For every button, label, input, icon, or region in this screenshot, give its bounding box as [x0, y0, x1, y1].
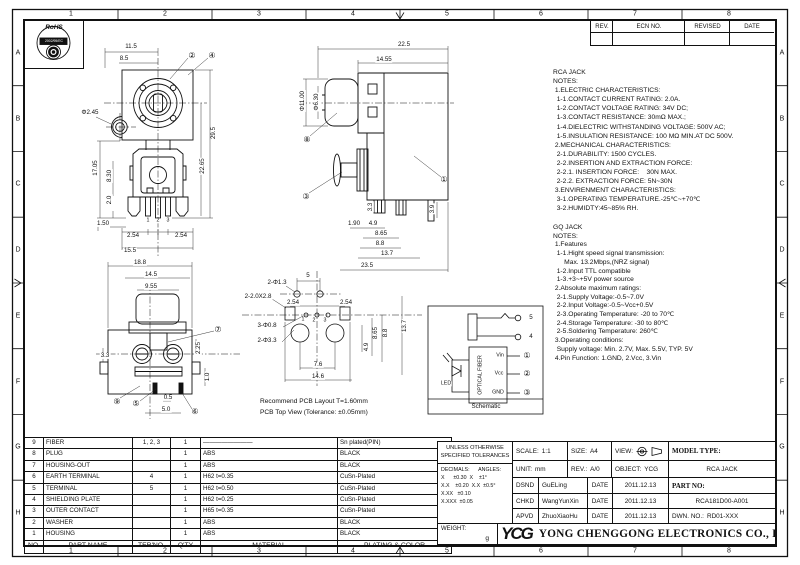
note-line: 2-2.1. INSERTION FORCE: 30N MAX.	[553, 168, 733, 177]
parts-table-cell: ABS	[201, 449, 338, 460]
parts-table-cell: HOUSING	[44, 529, 133, 540]
pcb-caption-line2: PCB Top View (Tolerance: ±0.05mm)	[260, 409, 368, 416]
revision-empty-cell	[684, 32, 730, 45]
grid-row-label: A	[780, 49, 785, 56]
parts-table-cell: 1	[171, 517, 201, 528]
note-line: 1-2.CONTACT VOLTAGE RATING: 34V DC;	[553, 104, 733, 113]
pcb-layout-view	[285, 291, 350, 342]
tolerance-block: UNLESS OTHERWISE SPECIFIED TOLERANCES DE…	[437, 441, 513, 524]
dimension-label: 29.5	[211, 126, 217, 140]
tolerance-values: DECIMALS: ANGLES:X ±0.30 X ±1°X.X ±0.20 …	[438, 464, 512, 506]
dimension-label: 8.8	[375, 241, 386, 247]
note-line: 2-2.2. EXTRACTION FORCE: 5N~30N	[553, 177, 733, 186]
apvd-name: ZhuoXiaoHu	[542, 513, 578, 520]
weight-cell: WEIGHT: g	[437, 523, 498, 545]
chkd-label: CHKD	[516, 498, 534, 505]
parts-table-cell: 1	[25, 529, 44, 540]
dimension-label: 3.9	[430, 204, 436, 215]
note-line: 2-2.INSERTION AND EXTRACTION FORCE:	[553, 159, 733, 168]
dimension-label: 0.5	[163, 395, 174, 401]
dsnd-date-cell: 2011.12.13	[612, 477, 669, 494]
parts-table-cell: BLACK	[338, 517, 452, 528]
dimension-label: 3	[166, 218, 171, 223]
parts-table-cell: CuSn-Plated	[338, 494, 452, 505]
dimension-label: 4	[528, 334, 533, 340]
grid-column-label: 6	[539, 548, 543, 555]
note-line: 1-1.Hight speed signal transmission:	[553, 250, 693, 259]
part-no-label: PART NO:	[672, 482, 705, 490]
company-cell: YCG YONG CHENGGONG ELECTRONICS CO., LTD.	[497, 523, 776, 545]
parts-table-cell: BLACK	[338, 449, 452, 460]
dsnd-role-cell: DSND	[512, 477, 539, 494]
parts-table-cell: 3	[25, 506, 44, 517]
part-callout: ②	[188, 52, 195, 60]
note-line: 1-1.CONTACT CURRENT RATING: 2.0A.	[553, 95, 733, 104]
grid-row-label: E	[16, 312, 21, 319]
note-line: 3-1.OPERATING TEMPERATURE.-25℃~+70℃	[553, 195, 733, 204]
note-line: X.XX ±0.10	[441, 490, 512, 498]
dimension-label: 5.0	[161, 407, 172, 413]
drawing-sheet: 1122334455667788AABBCCDDEEFFGGHH RoHS 20…	[0, 0, 800, 565]
dimension-label: 3-Φ0.8	[256, 323, 277, 329]
chkd-role-cell: CHKD	[512, 493, 539, 509]
dimension-label: 2.54	[339, 300, 353, 306]
parts-table-cell: BLACK	[338, 529, 452, 540]
dimension-label: 8.30	[107, 169, 113, 183]
size-label: SIZE:	[571, 448, 587, 455]
grid-column-label: 7	[633, 548, 637, 555]
grid-column-label: 6	[539, 11, 543, 18]
note-line: GQ JACK	[553, 224, 693, 233]
note-line: 1.ELECTRIC CHARACTERISTICS:	[553, 86, 733, 95]
part-no-value: RCA181D00-A001	[696, 498, 749, 505]
part-callout: ③	[302, 193, 309, 201]
bottom-view	[100, 294, 200, 394]
dimension-label: 22.65	[200, 157, 206, 174]
parts-table-cell: 1	[171, 483, 201, 494]
dimension-label: 11.5	[124, 44, 138, 50]
parts-table-cell: 5	[25, 483, 44, 494]
dimension-label: 22.5	[397, 42, 411, 48]
chkd-date: 2011.12.13	[625, 498, 657, 505]
apvd-date: 2011.12.13	[625, 513, 657, 520]
dimension-label: 2-Φ3.3	[256, 338, 277, 344]
parts-table-cell: NO.	[25, 540, 44, 554]
parts-table-cell: 1	[171, 506, 201, 517]
dimension-label: 2.54	[286, 300, 300, 306]
front-view	[112, 70, 193, 218]
dimension-label: 1.0	[205, 372, 211, 383]
parts-table-cell: BLACK	[338, 460, 452, 471]
grid-row-label: F	[16, 378, 20, 385]
note-line: 2.Absolute maximum ratings:	[553, 285, 693, 294]
dsnd-label: DSND	[516, 482, 534, 489]
grid-row-label: G	[15, 444, 20, 451]
parts-table-cell: 9	[25, 438, 44, 449]
note-line: 1-3.CONTACT RESISTANCE: 30mΩ MAX.;	[553, 113, 733, 122]
parts-table-cell: CuSn-Plated	[338, 506, 452, 517]
parts-table-cell: H65 t=0.35	[201, 506, 338, 517]
note-line: 1-4.DIELECTRIC WITHSTANDING VOLTAGE: 500…	[553, 123, 733, 132]
dimension-label: 1.90	[347, 221, 361, 227]
grid-row-label: B	[780, 115, 785, 122]
parts-table-cell: WASHER	[44, 517, 133, 528]
chkd-date-cell: 2011.12.13	[612, 493, 669, 509]
projection-symbols-icon	[636, 446, 663, 457]
tolerance-title-line2: SPECIFIED TOLERANCES	[438, 453, 512, 461]
rohs-title: RoHS	[25, 24, 83, 31]
grid-column-label: 2	[163, 11, 167, 18]
view-cell: VIEW:	[611, 441, 669, 461]
parts-table-cell: 5	[133, 483, 171, 494]
model-type-label-cell: MODEL TYPE:	[668, 441, 776, 461]
dimension-label: 14.5	[144, 272, 158, 278]
pcb-caption-line1: Recommend PCB Layout T=1.60mm	[260, 398, 368, 405]
parts-table-cell	[133, 517, 171, 528]
size-value: A4	[590, 448, 598, 455]
dwn-no-label: DWN. NO.:	[672, 513, 704, 520]
rca-jack-notes: RCA JACKNOTES: 1.ELECTRIC CHARACTERISTIC…	[553, 68, 733, 214]
part-callout: ⑥	[191, 408, 198, 416]
model-type-value-cell: RCA JACK	[668, 460, 776, 478]
scale-label: SCALE:	[516, 448, 539, 455]
unit-label: UNIT:	[516, 466, 532, 473]
grid-column-label: 8	[727, 548, 731, 555]
dimension-label: 18.8	[133, 260, 147, 266]
dimension-label: Vin	[495, 353, 505, 358]
note-line: 2-2.Input Voltage:-0.5~Vcc+0.5V	[553, 302, 693, 311]
grid-row-label: E	[780, 312, 785, 319]
grid-row-label: D	[779, 247, 784, 254]
parts-table-cell: H62 t=0.25	[201, 494, 338, 505]
unit-value: mm	[535, 466, 546, 473]
weight-unit: g	[485, 535, 489, 542]
note-line: Max. 13.2Mbps,(NRZ signal)	[553, 259, 693, 268]
dimension-label: 4.9	[368, 221, 379, 227]
rev-value: A/0	[590, 466, 600, 473]
note-line: 2-1.DURABILITY: 1500 CYCLES.	[553, 150, 733, 159]
part-callout: ⑨	[113, 398, 120, 406]
parts-table-cell: ABS	[201, 517, 338, 528]
company-name: YONG CHENGGONG ELECTRONICS CO., LTD.	[539, 528, 776, 540]
dimension-label: Φ6.30	[314, 93, 320, 112]
gq-jack-notes: GQ JACKNOTES: 1.Features 1-1.Hight speed…	[553, 224, 693, 363]
dimension-label: 2.54	[126, 233, 140, 239]
parts-table-cell: Q'TY	[171, 540, 201, 554]
parts-table-cell: 1	[171, 472, 201, 483]
grid-row-label: C	[15, 181, 20, 188]
dimension-label: 2-Φ1.3	[266, 280, 287, 286]
object-label: OBJECT:	[615, 466, 641, 473]
dimension-label: 2.0	[107, 195, 113, 206]
parts-table-cell: FIBER	[44, 438, 133, 449]
dimension-label: 8.8	[383, 328, 389, 339]
part-callout: ①	[440, 176, 447, 184]
rev-cell: REV.: A/0	[567, 460, 612, 478]
dimension-label: 4.9	[364, 342, 370, 353]
parts-table-cell: 1	[171, 438, 201, 449]
parts-table-cell: PLUG	[44, 449, 133, 460]
dimension-label: 2-2.0X2.8	[244, 294, 273, 300]
grid-row-label: C	[779, 181, 784, 188]
parts-table-cell: 4	[25, 494, 44, 505]
note-line: 3.Operating conditions:	[553, 337, 693, 346]
grid-column-label: 5	[445, 11, 449, 18]
parts-table-cell: Sn plated(PIN)	[338, 438, 452, 449]
scale-cell: SCALE: 1:1	[512, 441, 568, 461]
dsnd-name: GuELing	[542, 482, 567, 489]
note-line: 1-3.+3~+5V power source	[553, 276, 693, 285]
revision-table: REV. ECN NO. REVISED DATE	[590, 20, 777, 46]
dimension-label: 9.55	[144, 284, 158, 290]
parts-table: 9FIBER1, 2, 31————————Sn plated(PIN)8PLU…	[24, 437, 452, 554]
note-line: 1-2.Input TTL compatible	[553, 268, 693, 277]
dimension-label: Vcc	[494, 371, 505, 376]
parts-table-cell: 6	[25, 472, 44, 483]
note-line: X.XXX ±0.05	[441, 498, 512, 506]
dimension-label: 5	[528, 315, 533, 321]
parts-table-cell: PLATING & COLOR	[338, 540, 452, 554]
parts-table-cell: ————————	[201, 438, 338, 449]
chkd-name-cell: WangYunXin	[538, 493, 588, 509]
dimension-label: 8.65	[373, 326, 379, 340]
note-line: NOTES:	[553, 77, 733, 86]
dimension-label: 8.5	[119, 56, 130, 62]
parts-table-cell: 2	[25, 517, 44, 528]
size-cell: SIZE: A4	[567, 441, 612, 461]
dimension-label: 3.3	[368, 202, 374, 213]
dimension-label: LED	[440, 381, 452, 386]
parts-table-cell	[133, 529, 171, 540]
parts-table-cell: 7	[25, 460, 44, 471]
weight-label: WEIGHT:	[441, 526, 466, 532]
revision-empty-cell	[729, 32, 774, 45]
dimension-label: 7.6	[313, 362, 324, 368]
note-line: DECIMALS: ANGLES:	[441, 466, 512, 474]
apvd-label: APVD	[516, 513, 533, 520]
dimension-label: OPTICAL FIBER	[478, 354, 483, 396]
part-callout: ②	[523, 370, 530, 378]
dimension-label: 2.25	[196, 341, 202, 355]
rohs-logo: RoHS 2002/95/EC	[24, 20, 84, 69]
note-line: 2-3.Operating Temperature: -20 to 70℃	[553, 311, 693, 320]
note-line: NOTES:	[553, 233, 693, 242]
parts-table-cell: ABS	[201, 460, 338, 471]
rohs-directive: 2002/95/EC	[25, 39, 83, 43]
dimension-label: 13.7	[402, 319, 408, 333]
grid-row-label: H	[779, 510, 784, 517]
dsnd-name-cell: GuELing	[538, 477, 588, 494]
note-line: RCA JACK	[553, 68, 733, 77]
part-no-label-cell: PART NO:	[668, 477, 776, 494]
parts-table-cell: MATERIAL	[201, 540, 338, 554]
dimension-label: 13.7	[380, 251, 394, 257]
rev-label: REV.:	[571, 466, 587, 473]
parts-table-cell: H62 t=0.50	[201, 483, 338, 494]
dimension-label: GND	[491, 390, 505, 395]
object-cell: OBJECT: YCG	[611, 460, 669, 478]
parts-table-cell: 1	[171, 494, 201, 505]
grid-column-label: 7	[633, 11, 637, 18]
parts-table-cell: OUTER CONTACT	[44, 506, 133, 517]
dsnd-date-label-cell: DATE	[587, 477, 613, 494]
note-line: 2-5.Soldering Temperature: 260℃	[553, 328, 693, 337]
parts-table-cell: HOUSING-OUT	[44, 460, 133, 471]
dimension-label: 15.5	[123, 248, 137, 254]
unit-cell: UNIT: mm	[512, 460, 568, 478]
parts-table-cell: 4	[133, 472, 171, 483]
grid-row-label: H	[15, 510, 20, 517]
grid-row-label: B	[16, 115, 21, 122]
parts-table-cell: H62 t=0.35	[201, 472, 338, 483]
parts-table-cell: EARTH TERMINAL	[44, 472, 133, 483]
part-callout: ①	[523, 352, 530, 360]
grid-column-label: 4	[351, 11, 355, 18]
parts-table-cell	[133, 460, 171, 471]
parts-table-cell	[133, 506, 171, 517]
grid-column-label: 8	[727, 11, 731, 18]
centerlines	[96, 58, 454, 419]
parts-table-cell	[133, 449, 171, 460]
date-label: DATE	[592, 482, 609, 489]
dimension-label: 3	[323, 318, 328, 323]
model-type-value: RCA JACK	[706, 466, 737, 473]
dimension-label: Schematic	[471, 404, 502, 410]
parts-table-cell: CuSn-Plated	[338, 472, 452, 483]
dimension-label: 17.05	[93, 159, 99, 176]
grid-row-label: D	[15, 247, 20, 254]
dimension-label: 8.65	[374, 231, 388, 237]
parts-table-cell: ABS	[201, 529, 338, 540]
dimension-label: 1.50	[96, 221, 110, 227]
note-line: Supply voltage: Min. 2.7V, Max. 5.5V, TY…	[553, 346, 693, 355]
note-line: 2.MECHANICAL CHARACTERISTICS:	[553, 141, 733, 150]
parts-table-cell: 1	[171, 529, 201, 540]
title-block: UNLESS OTHERWISE SPECIFIED TOLERANCES DE…	[437, 441, 776, 545]
dimension-label: 1	[146, 218, 151, 223]
dimension-label: Φ2.45	[81, 110, 100, 116]
note-line: 2-1.Supply Voltage:-0.5~7.0V	[553, 294, 693, 303]
company-logo: YCG	[501, 524, 532, 544]
parts-table-cell: TER'NO.	[133, 540, 171, 554]
dimension-label: 14.6	[311, 374, 325, 380]
note-line: X.X ±0.20 X.X ±0.5°	[441, 482, 512, 490]
note-line: 1.Features	[553, 241, 693, 250]
side-view	[322, 73, 448, 221]
parts-table-cell: 1, 2, 3	[133, 438, 171, 449]
note-line: 1-5.INSULATION RESISTANCE: 100 MΩ MIN.AT…	[553, 132, 733, 141]
parts-table-cell: SHIELDING PLATE	[44, 494, 133, 505]
part-no-value-cell: RCA181D00-A001	[668, 493, 776, 509]
note-line: 3.ENVIRENMENT CHARACTERISTICS:	[553, 186, 733, 195]
dimension-lines	[96, 46, 448, 413]
object-value: YCG	[644, 466, 658, 473]
note-line: 2-4.Storage Temperature: -30 to 80℃	[553, 320, 693, 329]
dimension-label: 5	[305, 273, 310, 279]
grid-column-label: 1	[69, 11, 73, 18]
dimension-label: 14.55	[375, 57, 392, 63]
note-line: 4.Pin Function: 1.GND, 2.Vcc, 3.Vin	[553, 355, 693, 364]
part-callout: ④	[208, 52, 215, 60]
dimension-label: 1	[301, 317, 306, 322]
grid-row-label: G	[779, 444, 784, 451]
chkd-name: WangYunXin	[542, 498, 579, 505]
grid-column-label: 3	[257, 11, 261, 18]
scale-value: 1:1	[542, 448, 551, 455]
note-line: X ±0.30 X ±1°	[441, 474, 512, 482]
parts-table-cell: TERMINAL	[44, 483, 133, 494]
dsnd-date: 2011.12.13	[625, 482, 657, 489]
schematic-view	[428, 306, 543, 414]
revision-empty-cell	[590, 32, 613, 45]
chkd-date-label-cell: DATE	[587, 493, 613, 509]
parts-table-cell	[133, 494, 171, 505]
dimension-label: 23.5	[360, 263, 374, 269]
parts-table-cell: 1	[171, 449, 201, 460]
grid-row-label: A	[16, 49, 21, 56]
parts-table-cell: 8	[25, 449, 44, 460]
model-type-label: MODEL TYPE:	[672, 447, 721, 455]
parts-table-cell: CuSn-Plated	[338, 483, 452, 494]
revision-empty-cell	[612, 32, 685, 45]
grid-row-label: F	[780, 378, 784, 385]
parts-table-cell: 1	[171, 460, 201, 471]
part-callout: ⑤	[132, 400, 139, 408]
part-callout: ③	[523, 389, 530, 397]
dimension-label: Φ11.00	[300, 90, 306, 112]
dimension-label: 2.54	[174, 233, 188, 239]
part-callout: ⑦	[214, 326, 221, 334]
parts-table-cell: PART NAME	[44, 540, 133, 554]
tolerance-title-line1: UNLESS OTHERWISE	[438, 445, 512, 453]
date-label: DATE	[592, 498, 609, 505]
note-line: 3-2.HUMIDTY:45~85% RH.	[553, 204, 733, 213]
dimension-label: 2	[312, 318, 317, 323]
part-callout: ⑧	[303, 136, 310, 144]
date-label: DATE	[592, 513, 609, 520]
dimension-label: 2	[156, 218, 161, 223]
view-label: VIEW:	[615, 448, 633, 455]
dimension-label: 3.3	[100, 353, 111, 359]
dwn-no-value: RD01-XXX	[707, 513, 738, 520]
